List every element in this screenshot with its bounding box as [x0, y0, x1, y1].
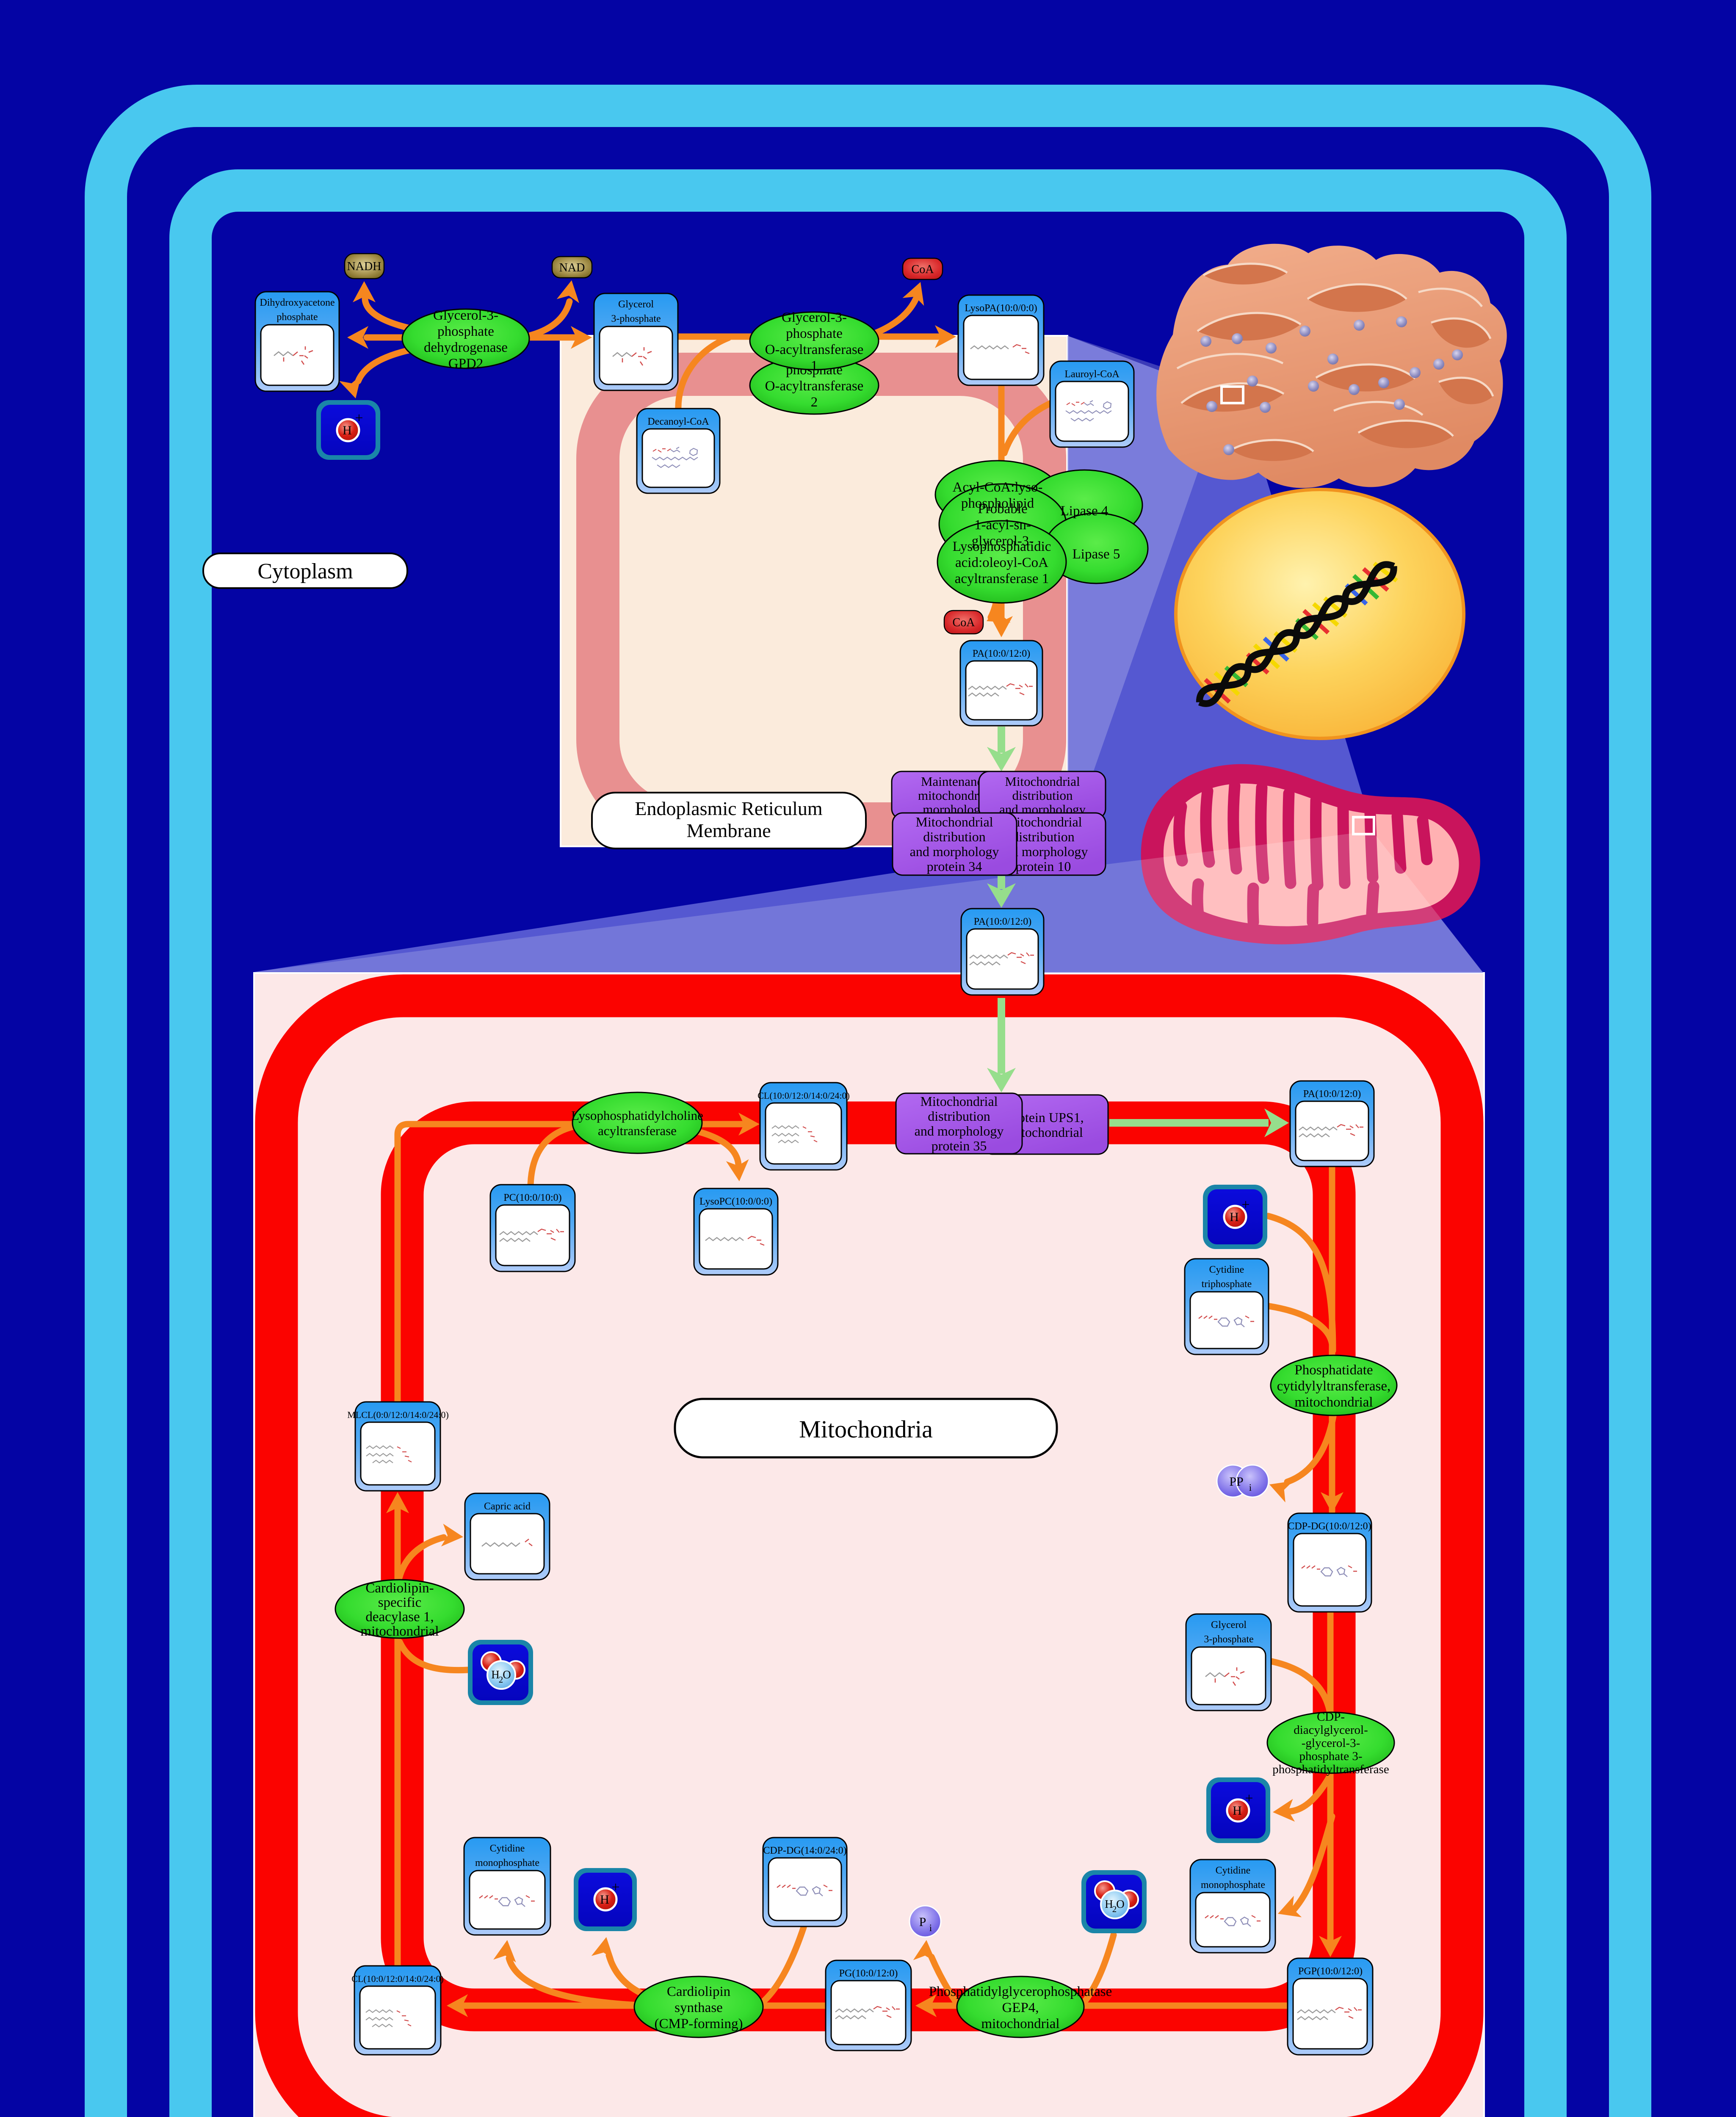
svg-text:MLCL(0:0/12:0/14:0/24:0): MLCL(0:0/12:0/14:0/24:0) — [347, 1409, 449, 1420]
svg-text:H: H — [343, 423, 352, 437]
svg-text:CDP-DG(14:0/24:0): CDP-DG(14:0/24:0) — [763, 1845, 846, 1856]
svg-text:Cytidine: Cytidine — [1216, 1865, 1251, 1876]
svg-text:protein 34: protein 34 — [927, 859, 982, 874]
svg-text:Capric acid: Capric acid — [484, 1501, 531, 1512]
svg-text:specific: specific — [378, 1595, 422, 1610]
svg-text:Mitochondrial: Mitochondrial — [920, 1094, 998, 1109]
svg-text:O: O — [1116, 1898, 1125, 1910]
svg-text:Membrane: Membrane — [686, 820, 771, 841]
svg-text:acyltransferase 1: acyltransferase 1 — [955, 571, 1049, 586]
svg-text:CoA: CoA — [912, 263, 934, 276]
svg-text:Glycerol: Glycerol — [618, 299, 654, 310]
svg-text:i: i — [1249, 1482, 1252, 1493]
svg-text:cytidylyltransferase,: cytidylyltransferase, — [1277, 1379, 1390, 1394]
svg-text:Glycerol: Glycerol — [1211, 1620, 1247, 1631]
svg-text:+: + — [355, 410, 363, 426]
svg-text:PA(10:0/12:0): PA(10:0/12:0) — [973, 648, 1030, 659]
svg-text:i: i — [929, 1923, 932, 1933]
svg-text:PGP(10:0/12:0): PGP(10:0/12:0) — [1298, 1966, 1363, 1977]
svg-text:H: H — [1230, 1210, 1239, 1224]
svg-text:CL(10:0/12:0/14:0/24:0): CL(10:0/12:0/14:0/24:0) — [351, 1973, 444, 1984]
svg-text:distribution: distribution — [923, 829, 986, 844]
svg-text:Lipase 5: Lipase 5 — [1073, 547, 1120, 562]
svg-text:diacylglycerol-: diacylglycerol- — [1294, 1723, 1368, 1737]
svg-text:triphosphate: triphosphate — [1202, 1279, 1252, 1290]
svg-text:Lysophosphatidic: Lysophosphatidic — [953, 539, 1051, 554]
svg-text:Cardiolipin-: Cardiolipin- — [365, 1581, 434, 1596]
svg-text:protein 10: protein 10 — [1016, 859, 1071, 874]
svg-text:NAD: NAD — [559, 261, 585, 274]
svg-text:Cytidine: Cytidine — [1209, 1264, 1244, 1275]
svg-text:GEP4,: GEP4, — [1002, 2000, 1039, 2015]
svg-text:Mitochondria: Mitochondria — [799, 1415, 933, 1443]
svg-text:+: + — [1245, 1791, 1253, 1806]
svg-text:dehydrogenase: dehydrogenase — [424, 340, 508, 355]
svg-text:monophosphate: monophosphate — [475, 1857, 539, 1868]
svg-text:protein 35: protein 35 — [932, 1138, 987, 1153]
svg-text:CDP-: CDP- — [1317, 1710, 1345, 1724]
svg-text:Phosphatidate: Phosphatidate — [1294, 1363, 1373, 1378]
svg-text:Endoplasmic Reticulum: Endoplasmic Reticulum — [635, 798, 823, 819]
svg-text:Mitochondrial: Mitochondrial — [1005, 774, 1080, 789]
svg-text:distribution: distribution — [928, 1108, 990, 1124]
svg-text:GPD2: GPD2 — [448, 356, 484, 371]
svg-text:(CMP-forming): (CMP-forming) — [655, 2016, 743, 2031]
svg-text:H: H — [1233, 1804, 1242, 1818]
svg-text:Cytidine: Cytidine — [490, 1843, 525, 1854]
svg-text:P: P — [919, 1915, 926, 1929]
svg-text:+: + — [611, 1879, 619, 1895]
svg-text:+: + — [1241, 1197, 1249, 1213]
svg-text:Probable: Probable — [978, 501, 1027, 517]
svg-text:CDP-DG(10:0/12:0): CDP-DG(10:0/12:0) — [1288, 1521, 1371, 1532]
svg-text:phosphatidyltransferase: phosphatidyltransferase — [1272, 1763, 1389, 1776]
svg-text:synthase: synthase — [674, 2000, 723, 2015]
svg-text:PC(10:0/10:0): PC(10:0/10:0) — [503, 1192, 561, 1203]
svg-text:1: 1 — [811, 358, 818, 373]
svg-text:and morphology: and morphology — [910, 844, 999, 859]
svg-text:Cytoplasm: Cytoplasm — [257, 559, 353, 583]
svg-text:phosphate 3-: phosphate 3- — [1299, 1749, 1363, 1763]
svg-text:Lauroyl-CoA: Lauroyl-CoA — [1064, 369, 1120, 380]
svg-text:PA(10:0/12:0): PA(10:0/12:0) — [974, 916, 1031, 927]
svg-text:-glycerol-3-: -glycerol-3- — [1302, 1736, 1360, 1750]
svg-text:mitochondrial: mitochondrial — [360, 1624, 439, 1639]
svg-text:phosphate: phosphate — [437, 324, 494, 339]
svg-text:acid:oleoyl-CoA: acid:oleoyl-CoA — [955, 555, 1048, 570]
svg-text:H: H — [600, 1893, 609, 1907]
svg-text:Acyl-CoA:lyso-: Acyl-CoA:lyso- — [953, 480, 1043, 495]
svg-text:mitochondrial: mitochondrial — [1294, 1395, 1373, 1410]
svg-text:3-phosphate: 3-phosphate — [1204, 1634, 1253, 1645]
svg-text:O-acyltransferase: O-acyltransferase — [765, 379, 864, 394]
svg-text:Dihydroxyacetone: Dihydroxyacetone — [260, 297, 334, 308]
svg-text:PP: PP — [1229, 1475, 1243, 1489]
svg-text:O: O — [503, 1668, 511, 1681]
svg-text:mitochondrial: mitochondrial — [981, 2016, 1059, 2031]
svg-text:LysoPC(10:0/0:0): LysoPC(10:0/0:0) — [699, 1196, 772, 1207]
svg-text:CoA: CoA — [953, 616, 976, 629]
svg-text:LysoPA(10:0/0:0): LysoPA(10:0/0:0) — [965, 303, 1037, 314]
svg-text:Lipase 4: Lipase 4 — [1061, 503, 1108, 519]
svg-text:2: 2 — [811, 395, 818, 410]
svg-text:Phosphatidylglycerophosphatase: Phosphatidylglycerophosphatase — [929, 1984, 1112, 1999]
svg-text:O-acyltransferase: O-acyltransferase — [765, 342, 864, 357]
svg-text:1-acyl-sn-: 1-acyl-sn- — [974, 517, 1031, 533]
svg-text:Glycerol-3-: Glycerol-3- — [433, 308, 498, 323]
svg-text:distribution: distribution — [1012, 829, 1075, 844]
svg-text:Glycerol-3-: Glycerol-3- — [782, 310, 847, 325]
svg-text:Decanoyl-CoA: Decanoyl-CoA — [647, 416, 709, 427]
svg-text:Lysophosphatidylcholine: Lysophosphatidylcholine — [571, 1108, 703, 1123]
svg-text:deacylase 1,: deacylase 1, — [365, 1609, 434, 1625]
svg-text:monophosphate: monophosphate — [1201, 1879, 1265, 1890]
svg-text:and morphology: and morphology — [915, 1123, 1004, 1139]
svg-text:3-phosphate: 3-phosphate — [611, 313, 661, 324]
svg-text:Mitochondrial: Mitochondrial — [915, 814, 993, 829]
svg-text:PA(10:0/12:0): PA(10:0/12:0) — [1303, 1089, 1361, 1100]
svg-text:phosphate: phosphate — [786, 326, 843, 341]
svg-text:Cardiolipin: Cardiolipin — [667, 1984, 730, 1999]
svg-text:NADH: NADH — [347, 260, 381, 273]
svg-text:phosphate: phosphate — [276, 312, 318, 323]
svg-text:CL(10:0/12:0/14:0/24:0): CL(10:0/12:0/14:0/24:0) — [757, 1090, 850, 1101]
svg-text:distribution: distribution — [1012, 788, 1073, 803]
svg-text:PG(10:0/12:0): PG(10:0/12:0) — [839, 1968, 898, 1979]
svg-text:acyltransferase: acyltransferase — [598, 1123, 677, 1138]
